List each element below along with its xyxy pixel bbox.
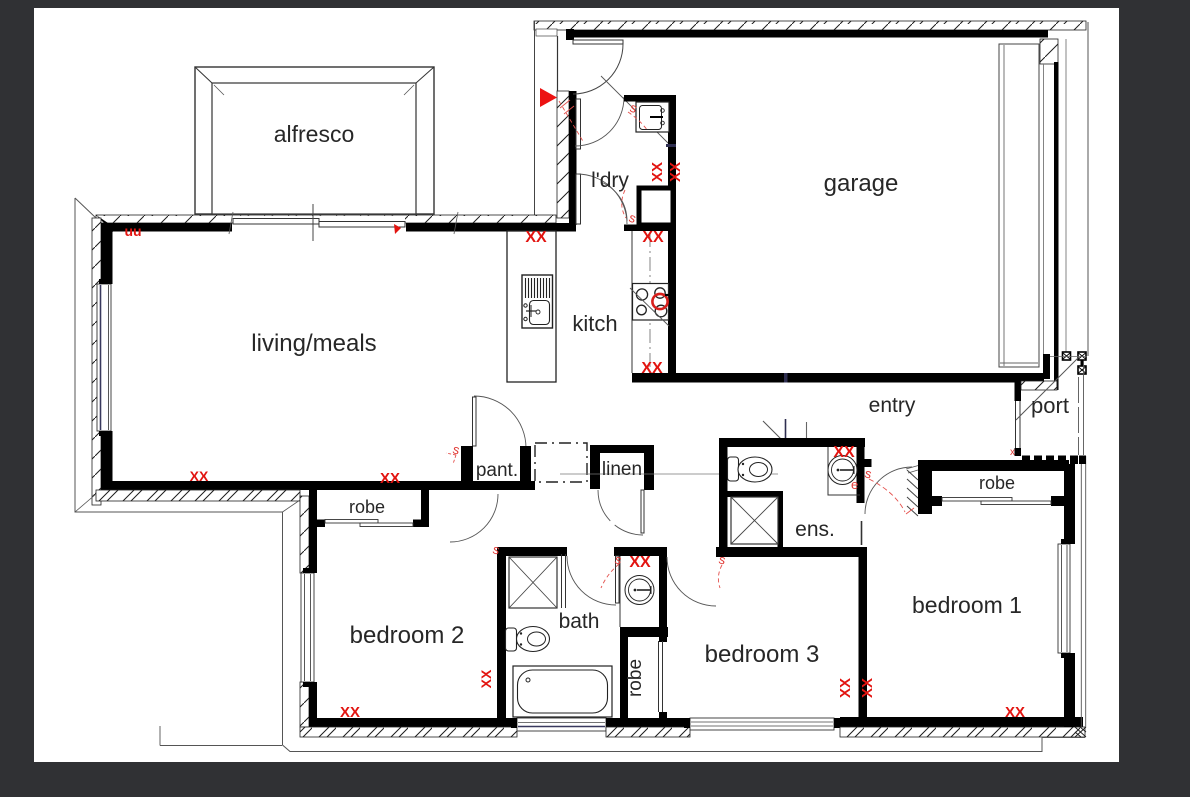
svg-text:garage: garage: [824, 170, 899, 197]
svg-text:XX: XX: [190, 468, 209, 484]
svg-text:XX: XX: [833, 444, 855, 461]
svg-text:XX: XX: [649, 162, 666, 182]
svg-text:bedroom 3: bedroom 3: [705, 641, 820, 668]
svg-text:robe: robe: [349, 497, 385, 517]
svg-text:XX: XX: [340, 704, 360, 721]
svg-text:l'dry: l'dry: [591, 169, 629, 192]
svg-text:pant.: pant.: [476, 460, 518, 481]
svg-text:bedroom 1: bedroom 1: [912, 592, 1022, 618]
svg-text:robe: robe: [625, 659, 646, 697]
svg-text:kitch: kitch: [572, 311, 617, 336]
svg-text:XX: XX: [1005, 704, 1025, 721]
svg-text:XX: XX: [380, 470, 400, 487]
svg-text:ens.: ens.: [795, 518, 835, 541]
svg-text:XX: XX: [629, 554, 651, 571]
svg-text:bedroom 2: bedroom 2: [350, 622, 465, 649]
svg-text:XX: XX: [642, 229, 664, 246]
svg-text:entry: entry: [869, 394, 916, 417]
svg-text:living/meals: living/meals: [251, 330, 376, 357]
svg-text:XX: XX: [859, 678, 876, 698]
svg-text:port: port: [1031, 393, 1069, 418]
svg-text:alfresco: alfresco: [274, 121, 355, 147]
svg-text:XX: XX: [478, 669, 494, 688]
svg-text:linen: linen: [602, 459, 642, 480]
svg-text:uu: uu: [124, 223, 141, 239]
svg-text:XX: XX: [667, 162, 684, 182]
svg-text:bath: bath: [559, 610, 600, 633]
svg-text:XX: XX: [525, 229, 547, 246]
svg-text:XX: XX: [837, 678, 854, 698]
svg-text:XX: XX: [641, 360, 663, 377]
svg-text:e: e: [851, 477, 858, 492]
svg-text:x: x: [1010, 447, 1015, 458]
svg-text:robe: robe: [979, 473, 1015, 493]
